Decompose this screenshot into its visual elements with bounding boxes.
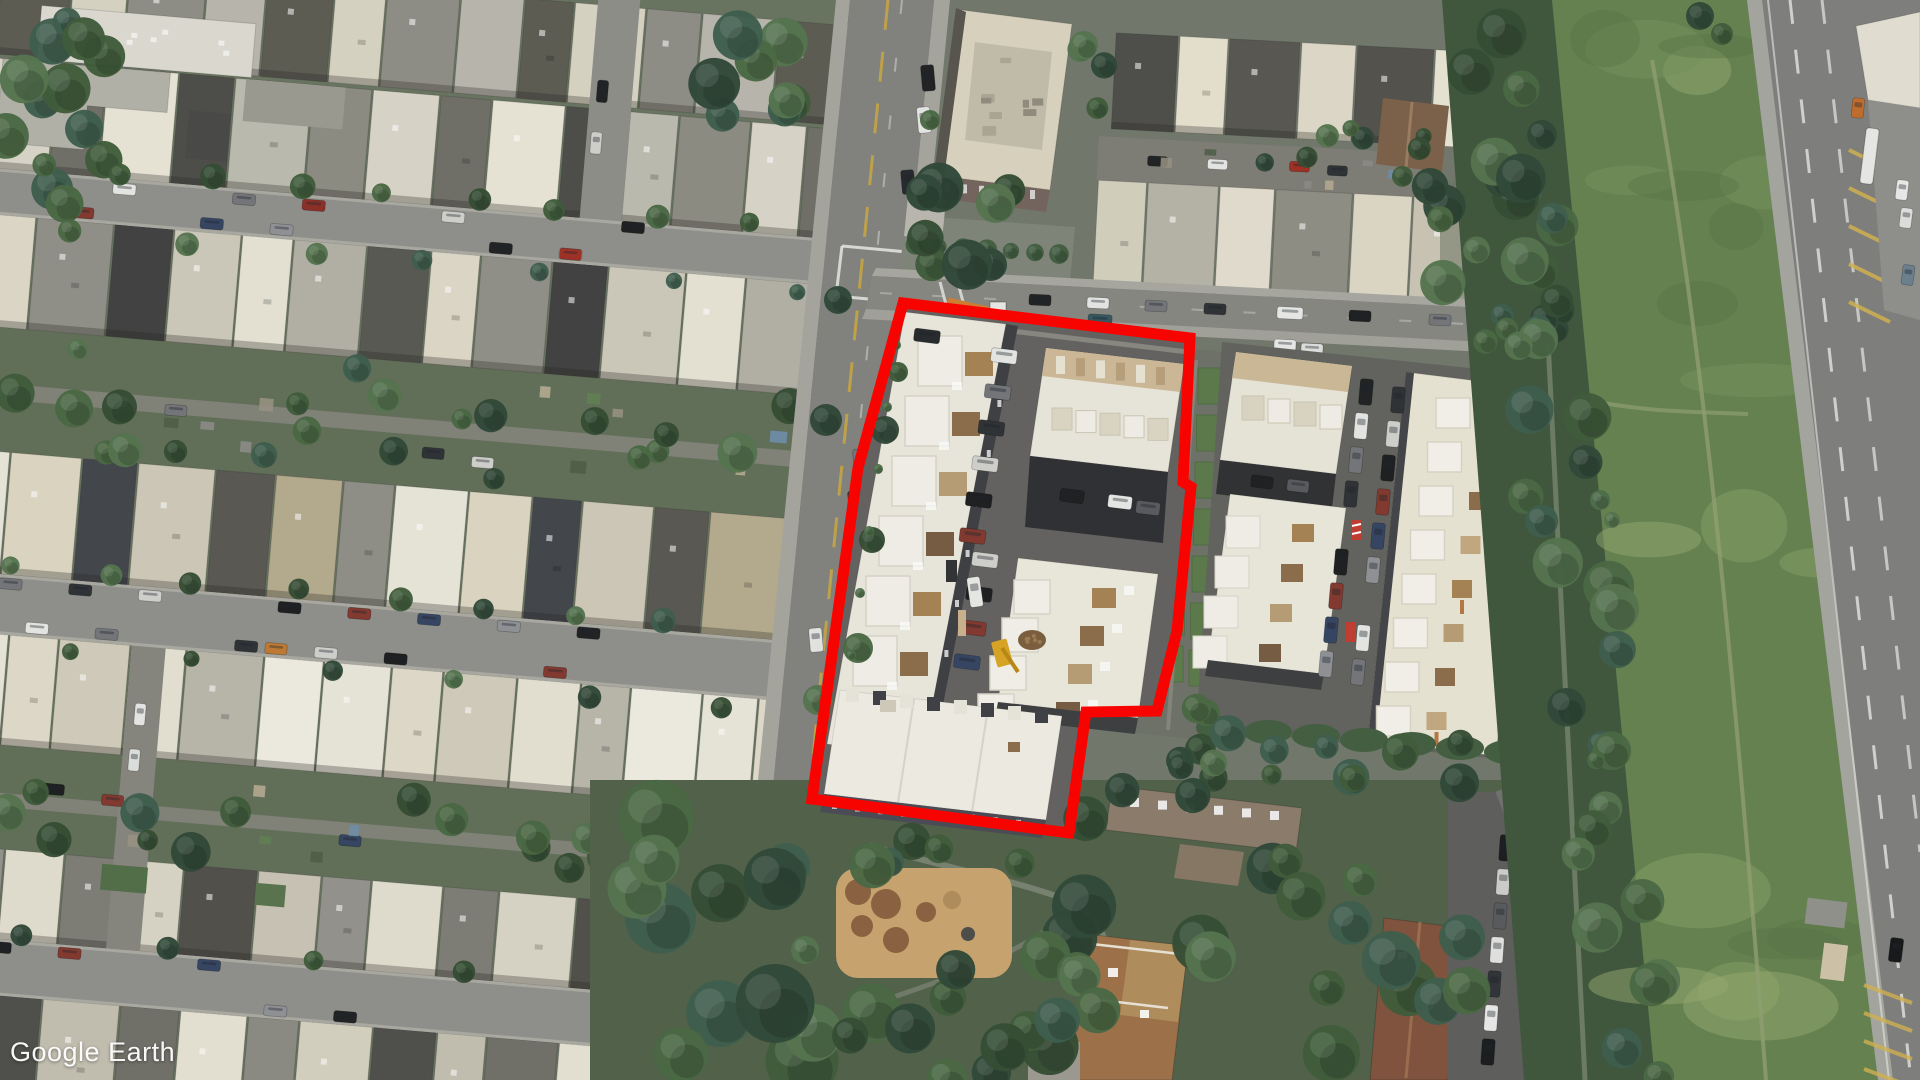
satellite-view[interactable] xyxy=(0,0,1920,1080)
google-earth-watermark: Google Earth xyxy=(10,1037,175,1068)
google-earth-viewport[interactable]: Google Earth xyxy=(0,0,1920,1080)
photo-haze xyxy=(0,0,1920,1080)
aerial-photo-layer xyxy=(0,0,1920,1080)
watermark-text: Google Earth xyxy=(10,1037,175,1067)
